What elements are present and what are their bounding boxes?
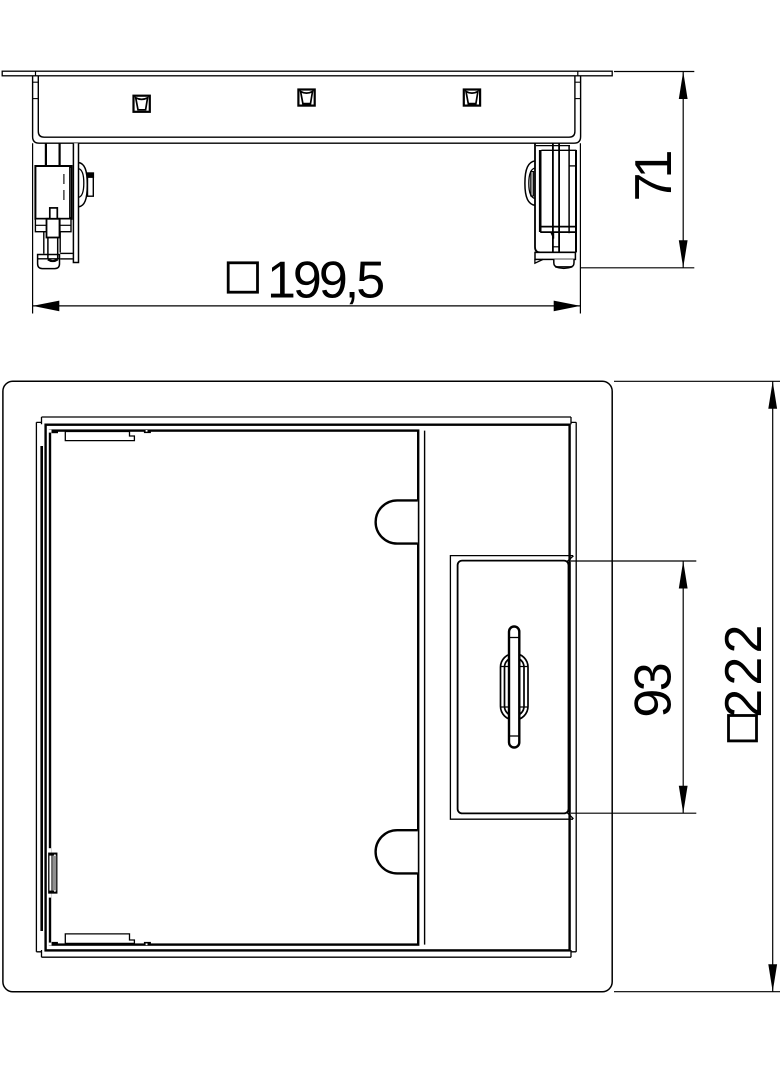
svg-text:93: 93 [625,664,683,717]
svg-text:199,5: 199,5 [267,251,383,309]
svg-text:222: 222 [715,621,773,717]
svg-text:71: 71 [625,152,683,202]
